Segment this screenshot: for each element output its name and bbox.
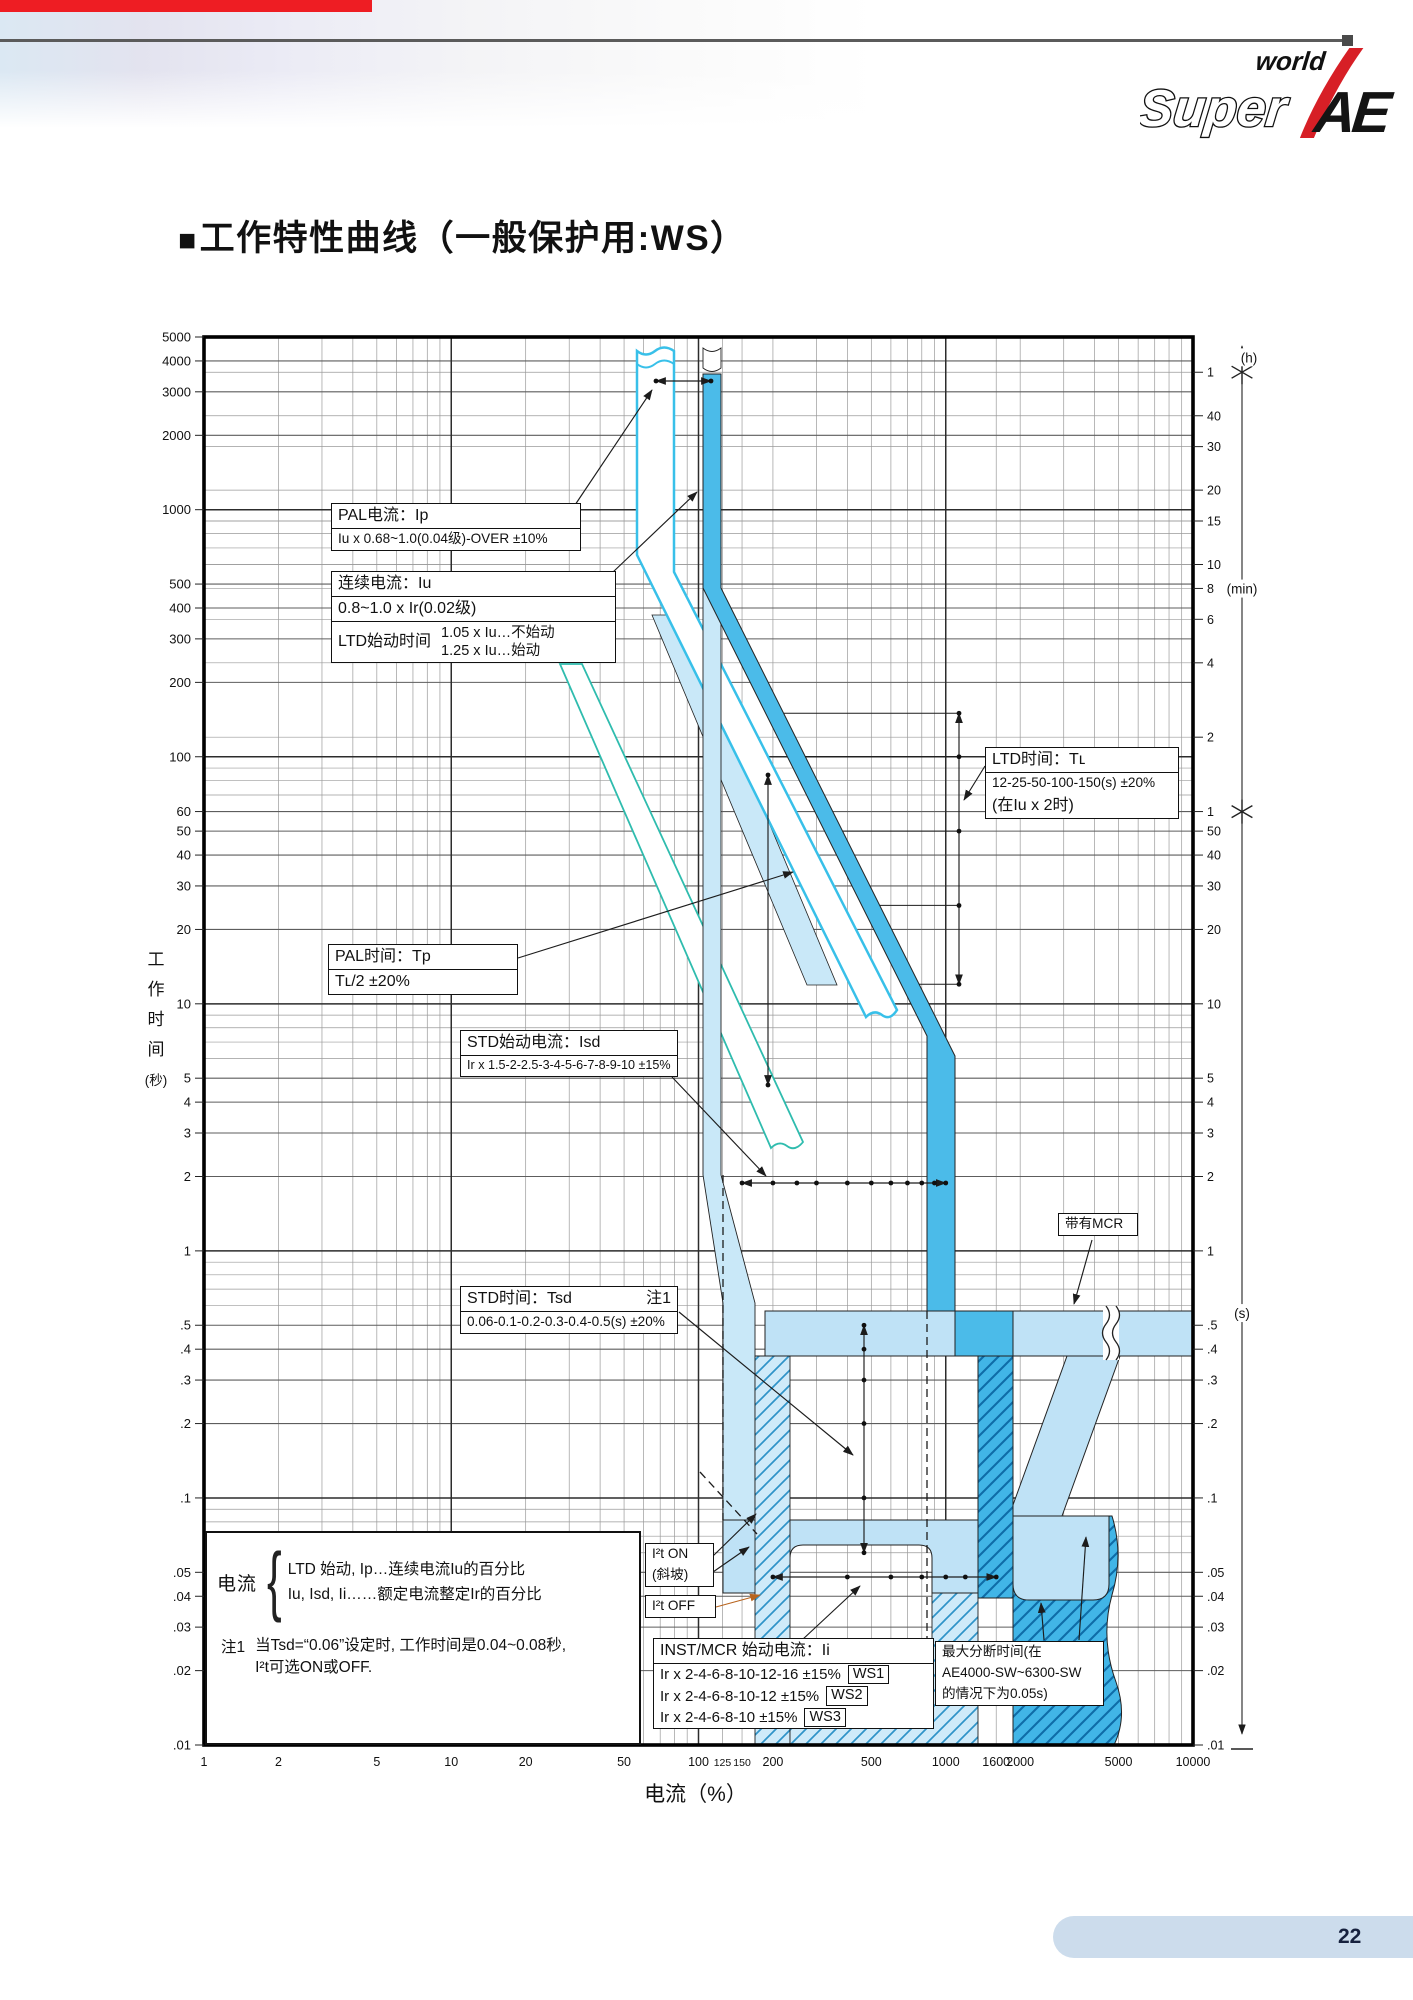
catalog-page: world Super AE ■工作特性曲线（一般保护用:WS） 5000400… [0, 0, 1413, 2000]
y-tick-.05: .05 [173, 1565, 191, 1580]
x-tick-50: 50 [617, 1755, 631, 1769]
band-ltd-band [703, 374, 955, 1311]
band-ltd-std-cross [955, 1311, 1013, 1356]
y-tick-.01: .01 [173, 1738, 191, 1753]
right-tick-5: 5 [1207, 1072, 1214, 1086]
right-tick-1: 1 [1207, 366, 1214, 380]
svg-text:(s): (s) [1234, 1306, 1250, 1321]
arrow-inst-box-leader [802, 1586, 860, 1640]
x-tick-1000: 1000 [932, 1755, 960, 1769]
right-tick-.01: .01 [1207, 1739, 1224, 1753]
x-tick-500: 500 [861, 1755, 882, 1769]
y-tick-.5: .5 [180, 1318, 191, 1333]
y-tick-3000: 3000 [162, 384, 191, 399]
y-axis-title-char-2: 时 [148, 1010, 165, 1029]
y-tick-4000: 4000 [162, 353, 191, 368]
right-tick-.3: .3 [1207, 1374, 1217, 1388]
y-tick-30: 30 [177, 878, 191, 893]
band-pal-lower-band [560, 664, 803, 1148]
right-tick-.5: .5 [1207, 1319, 1217, 1333]
y-tick-400: 400 [169, 601, 191, 616]
arrow-mcr-leader [1074, 1240, 1092, 1304]
right-tick-30: 30 [1207, 879, 1221, 893]
arrow-inst-pickup-dim [771, 1575, 999, 1580]
y-tick-40: 40 [177, 848, 191, 863]
y-tick-200: 200 [169, 675, 191, 690]
y-tick-300: 300 [169, 631, 191, 646]
right-tick-.4: .4 [1207, 1343, 1217, 1357]
y-tick-20: 20 [177, 922, 191, 937]
y-tick-.02: .02 [173, 1663, 191, 1678]
y-tick-1000: 1000 [162, 502, 191, 517]
right-tick-.04: .04 [1207, 1590, 1224, 1604]
y-tick-2000: 2000 [162, 428, 191, 443]
arrow-ltd-time-dim [957, 711, 962, 987]
right-tick-10: 10 [1207, 558, 1221, 572]
x-axis-title: 电流（%） [644, 1783, 747, 1806]
y-tick-.03: .03 [173, 1620, 191, 1635]
y-tick-60: 60 [177, 804, 191, 819]
x-tick-5000: 5000 [1105, 1755, 1133, 1769]
right-tick-6: 6 [1207, 613, 1214, 627]
band-inst-band-right [1013, 1516, 1109, 1600]
right-tick-3: 3 [1207, 1126, 1214, 1140]
right-tick-.02: .02 [1207, 1664, 1224, 1678]
y-tick-.3: .3 [180, 1373, 191, 1388]
page-number: 22 [1338, 1925, 1361, 1949]
x-tick-150: 150 [733, 1757, 751, 1769]
right-tick-4: 4 [1207, 656, 1214, 670]
right-tick-20: 20 [1207, 923, 1221, 937]
right-tick-1: 1 [1207, 1244, 1214, 1258]
unit-seconds: (s) [1226, 1304, 1258, 1322]
y-tick-.04: .04 [173, 1589, 191, 1604]
y-tick-10: 10 [177, 996, 191, 1011]
right-tick-.2: .2 [1207, 1417, 1217, 1431]
svg-text:(min): (min) [1227, 582, 1258, 597]
x-tick-10: 10 [444, 1755, 458, 1769]
band-hatch-col-dark [978, 1356, 1013, 1598]
trip-curve-chart: 5000400030002000100050040030020010060504… [0, 0, 1413, 2000]
right-tick-.05: .05 [1207, 1566, 1224, 1580]
right-tick-1: 1 [1207, 805, 1214, 819]
right-tick-50: 50 [1207, 825, 1221, 839]
y-tick-.1: .1 [180, 1490, 191, 1505]
unit-minutes: (min) [1218, 580, 1266, 598]
band-hatch-col-light [755, 1356, 790, 1745]
trip-bands [560, 348, 1193, 1746]
y-axis-title-char-0: 工 [148, 950, 165, 969]
right-tick-15: 15 [1207, 514, 1221, 528]
svg-text:(h): (h) [1241, 350, 1258, 365]
y-tick-.4: .4 [180, 1342, 191, 1357]
right-tick-40: 40 [1207, 409, 1221, 423]
x-tick-1: 1 [201, 1755, 208, 1769]
band-ltd-band-cap [703, 348, 721, 372]
y-tick-50: 50 [177, 824, 191, 839]
x-tick-200: 200 [763, 1755, 784, 1769]
right-tick-20: 20 [1207, 484, 1221, 498]
y-axis-title-char-3: 间 [148, 1040, 165, 1059]
y-axis-title-char-1: 作 [148, 980, 165, 999]
x-tick-100: 100 [688, 1755, 709, 1769]
x-tick-10000: 10000 [1176, 1755, 1211, 1769]
arrow-std-pickup-dim [740, 1181, 949, 1186]
y-tick-1: 1 [184, 1243, 191, 1258]
y-tick-100: 100 [169, 749, 191, 764]
y-tick-5000: 5000 [162, 330, 191, 345]
right-tick-2: 2 [1207, 1170, 1214, 1184]
right-tick-2: 2 [1207, 731, 1214, 745]
right-tick-4: 4 [1207, 1096, 1214, 1110]
y-tick-.2: .2 [180, 1416, 191, 1431]
band-hatch-bottom-light [790, 1593, 978, 1745]
right-tick-.1: .1 [1207, 1491, 1217, 1505]
x-tick-125: 125 [714, 1757, 732, 1769]
right-tick-30: 30 [1207, 440, 1221, 454]
y-tick-500: 500 [169, 577, 191, 592]
right-tick-8: 8 [1207, 582, 1214, 596]
right-tick-10: 10 [1207, 997, 1221, 1011]
right-tick-.03: .03 [1207, 1621, 1224, 1635]
y-tick-3: 3 [184, 1125, 191, 1140]
y-tick-5: 5 [184, 1071, 191, 1086]
unit-hours: (h) [1233, 348, 1265, 366]
right-tick-40: 40 [1207, 849, 1221, 863]
y-tick-4: 4 [184, 1095, 191, 1110]
x-tick-20: 20 [519, 1755, 533, 1769]
std-band-break [1103, 1306, 1120, 1360]
y-axis-title-char-4: (秒) [145, 1073, 168, 1088]
y-tick-2: 2 [184, 1169, 191, 1184]
scale-break-star-1 [1232, 800, 1253, 824]
x-tick-2: 2 [275, 1755, 282, 1769]
x-tick-2000: 2000 [1006, 1755, 1034, 1769]
x-tick-5: 5 [373, 1755, 380, 1769]
